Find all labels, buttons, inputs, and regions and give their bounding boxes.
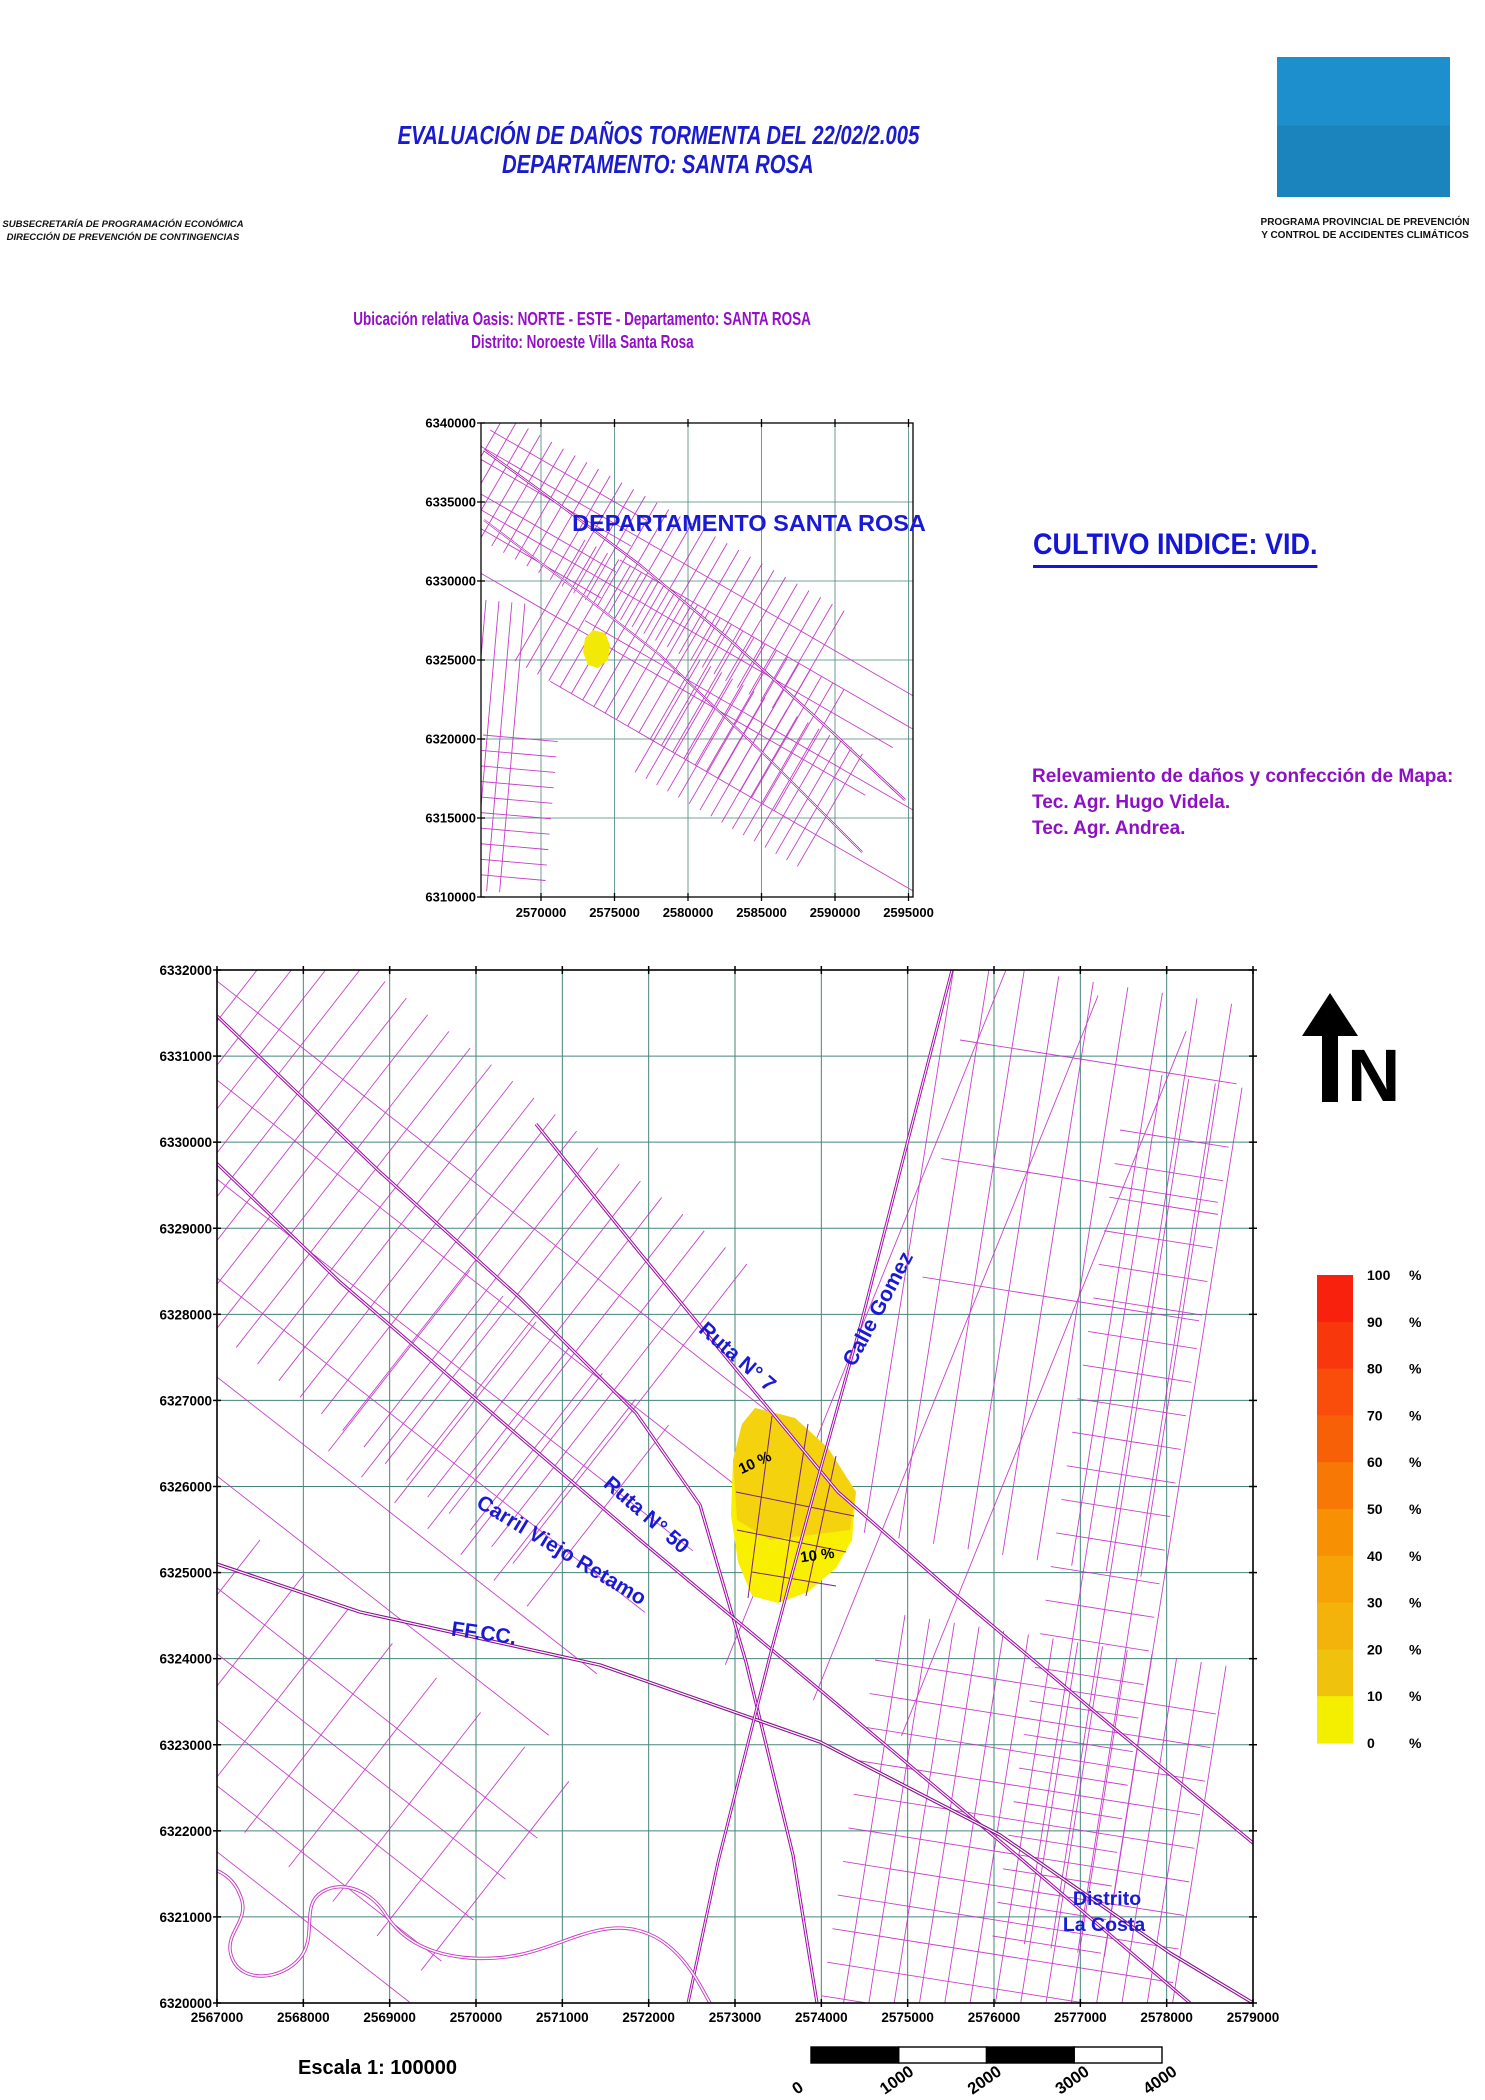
legend-unit-label: % bbox=[1409, 1501, 1422, 1517]
legend-value-label: 70 bbox=[1367, 1407, 1383, 1423]
main-y-tick-label: 6325000 bbox=[159, 1566, 212, 1581]
north-arrow-head bbox=[1302, 993, 1358, 1036]
scale-bar-segment bbox=[987, 2047, 1075, 2063]
legend-segment bbox=[1317, 1369, 1353, 1416]
map-document-page: SUBSECRETARÍA DE PROGRAMACIÓN ECONÓMICA … bbox=[0, 0, 1485, 2100]
main-x-tick-label: 2567000 bbox=[191, 2010, 244, 2025]
scale-bar-label: 0 bbox=[789, 2078, 807, 2098]
overview-x-tick-label: 2595000 bbox=[883, 905, 934, 920]
legend-segment bbox=[1317, 1275, 1353, 1322]
scale-bar-segment bbox=[811, 2047, 899, 2063]
overview-x-tick-label: 2580000 bbox=[663, 905, 714, 920]
legend-unit-label: % bbox=[1409, 1548, 1422, 1564]
legend-segment bbox=[1317, 1509, 1353, 1556]
main-y-tick-label: 6323000 bbox=[159, 1738, 212, 1753]
north-label: N bbox=[1347, 1034, 1400, 1117]
main-y-tick-label: 6330000 bbox=[159, 1135, 212, 1150]
district-label-line1: Distrito bbox=[1073, 1888, 1141, 1910]
overview-x-tick-label: 2575000 bbox=[589, 905, 640, 920]
overview-y-tick-label: 6340000 bbox=[425, 416, 476, 431]
legend-value-label: 60 bbox=[1367, 1454, 1383, 1470]
legend-unit-label: % bbox=[1409, 1595, 1422, 1611]
main-y-tick-label: 6328000 bbox=[159, 1307, 212, 1322]
main-y-tick-label: 6331000 bbox=[159, 1049, 212, 1064]
main-x-tick-label: 2576000 bbox=[968, 2010, 1021, 2025]
overview-x-tick-label: 2590000 bbox=[810, 905, 861, 920]
overview-y-tick-label: 6335000 bbox=[425, 495, 476, 510]
overview-y-tick-label: 6315000 bbox=[425, 811, 476, 826]
overview-map-canvas bbox=[415, 415, 984, 897]
legend-unit-label: % bbox=[1409, 1267, 1422, 1283]
main-x-tick-label: 2570000 bbox=[450, 2010, 503, 2025]
legend-unit-label: % bbox=[1409, 1407, 1422, 1423]
main-y-tick-label: 6329000 bbox=[159, 1221, 212, 1236]
map-graphics: 2570000257500025800002585000259000025950… bbox=[0, 0, 1485, 2100]
legend-value-label: 100 bbox=[1367, 1267, 1391, 1283]
district-label-line2: La Costa bbox=[1063, 1914, 1146, 1936]
main-x-tick-label: 2573000 bbox=[709, 2010, 762, 2025]
main-y-tick-label: 6327000 bbox=[159, 1393, 212, 1408]
legend-value-label: 40 bbox=[1367, 1548, 1383, 1564]
scale-bar-label: 1000 bbox=[877, 2062, 917, 2098]
main-x-tick-label: 2569000 bbox=[363, 2010, 416, 2025]
north-arrow: N bbox=[1302, 993, 1400, 1117]
legend-unit-label: % bbox=[1409, 1361, 1422, 1377]
main-y-tick-label: 6332000 bbox=[159, 963, 212, 978]
scale-bar-label: 3000 bbox=[1052, 2062, 1092, 2098]
scale-bar: 01000200030004000 bbox=[789, 2047, 1180, 2098]
damage-legend: 100%90%80%70%60%50%40%30%20%10%0% bbox=[1317, 1267, 1422, 1751]
main-y-tick-label: 6326000 bbox=[159, 1480, 212, 1495]
north-arrow-shaft bbox=[1322, 1032, 1338, 1102]
legend-unit-label: % bbox=[1409, 1641, 1422, 1657]
scale-bar-segment bbox=[1074, 2047, 1162, 2063]
scale-bar-label: 4000 bbox=[1140, 2062, 1180, 2098]
legend-value-label: 20 bbox=[1367, 1641, 1383, 1657]
scale-bar-label: 2000 bbox=[964, 2062, 1004, 2098]
legend-unit-label: % bbox=[1409, 1454, 1422, 1470]
legend-segment bbox=[1317, 1322, 1353, 1369]
main-y-tick-label: 6321000 bbox=[159, 1910, 212, 1925]
main-x-tick-label: 2571000 bbox=[536, 2010, 589, 2025]
main-y-tick-label: 6324000 bbox=[159, 1652, 212, 1667]
main-x-tick-label: 2577000 bbox=[1054, 2010, 1107, 2025]
legend-unit-label: % bbox=[1409, 1735, 1422, 1751]
legend-segment bbox=[1317, 1603, 1353, 1650]
main-x-tick-label: 2574000 bbox=[795, 2010, 848, 2025]
scale-bar-segment bbox=[899, 2047, 987, 2063]
overview-map-title: DEPARTAMENTO SANTA ROSA bbox=[572, 510, 926, 536]
legend-segment bbox=[1317, 1556, 1353, 1603]
overview-y-tick-label: 6325000 bbox=[425, 653, 476, 668]
main-x-tick-label: 2568000 bbox=[277, 2010, 330, 2025]
legend-value-label: 10 bbox=[1367, 1688, 1383, 1704]
main-y-tick-label: 6320000 bbox=[159, 1996, 212, 2011]
main-x-tick-label: 2579000 bbox=[1227, 2010, 1280, 2025]
legend-value-label: 90 bbox=[1367, 1314, 1383, 1330]
overview-x-tick-label: 2570000 bbox=[516, 905, 567, 920]
overview-y-tick-label: 6330000 bbox=[425, 574, 476, 589]
legend-segment bbox=[1317, 1696, 1353, 1743]
legend-value-label: 30 bbox=[1367, 1595, 1383, 1611]
overview-x-tick-label: 2585000 bbox=[736, 905, 787, 920]
legend-segment bbox=[1317, 1462, 1353, 1509]
overview-y-tick-label: 6320000 bbox=[425, 732, 476, 747]
main-x-tick-label: 2572000 bbox=[622, 2010, 675, 2025]
legend-unit-label: % bbox=[1409, 1314, 1422, 1330]
legend-segment bbox=[1317, 1415, 1353, 1462]
main-x-tick-label: 2578000 bbox=[1140, 2010, 1193, 2025]
legend-value-label: 50 bbox=[1367, 1501, 1383, 1517]
overview-y-tick-label: 6310000 bbox=[425, 890, 476, 905]
legend-value-label: 80 bbox=[1367, 1361, 1383, 1377]
main-x-tick-label: 2575000 bbox=[881, 2010, 934, 2025]
main-y-tick-label: 6322000 bbox=[159, 1824, 212, 1839]
legend-unit-label: % bbox=[1409, 1688, 1422, 1704]
legend-segment bbox=[1317, 1649, 1353, 1696]
legend-value-label: 0 bbox=[1367, 1735, 1375, 1751]
